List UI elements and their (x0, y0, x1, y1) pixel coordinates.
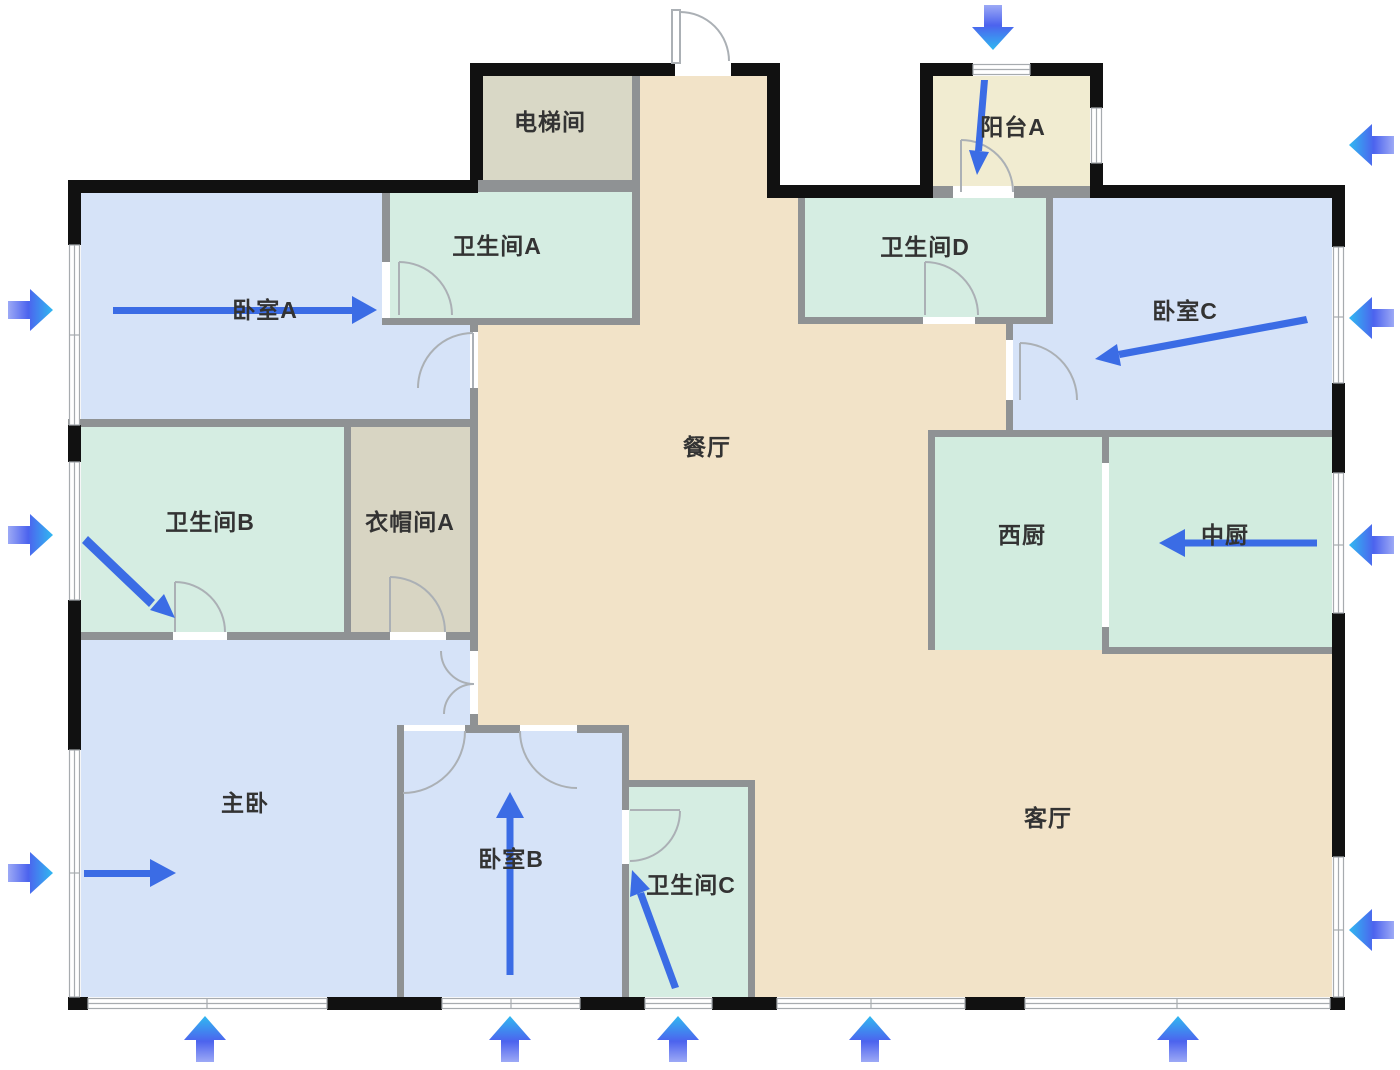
room-label-bath-d: 卫生间D (880, 234, 970, 260)
wall-left-1 (68, 180, 81, 245)
wall-right-1 (1332, 185, 1345, 247)
room-label-elevator: 电梯间 (514, 109, 586, 135)
room-label-bedroom-c: 卧室C (1152, 298, 1218, 324)
wall-elevator-block-left (470, 76, 483, 180)
wall-elevator-bottom (470, 180, 640, 192)
wind-arrow-right-living (1349, 909, 1394, 951)
window-bath-b-left (70, 462, 80, 600)
floor-fills (81, 76, 1332, 997)
window-bedroom-b-bottom (442, 999, 580, 1009)
window-balcony-right (1092, 108, 1102, 163)
window-living-right (1334, 857, 1344, 997)
wall-left-3 (68, 600, 81, 750)
wall-balcony-bottom-1 (933, 186, 953, 198)
wall-balcony-top-1 (920, 63, 973, 76)
wind-arrow-bottom-master (184, 1016, 226, 1062)
room-label-kitchen-west: 西厨 (998, 522, 1046, 548)
wind-arrow-bottom-living-1 (849, 1016, 891, 1062)
wall-dining-west-1 (470, 427, 478, 651)
room-label-bedroom-a: 卧室A (232, 297, 298, 323)
wall-bedroomb-top-1 (465, 725, 520, 733)
wall-bath-a-bottom (382, 318, 640, 325)
room-label-kitchen-chinese: 中厨 (1201, 522, 1249, 548)
wind-arrow-bottom-living-2 (1157, 1016, 1199, 1062)
wind-arrow-left-master (8, 852, 53, 894)
wall-left-2 (68, 425, 81, 462)
wall-bedroomb-top-2 (577, 725, 629, 733)
wall-dining-west-2 (470, 714, 478, 725)
wind-arrow-bottom-bath-c (657, 1016, 699, 1062)
wall-balcony-left (920, 63, 933, 198)
room-label-living: 客厅 (1024, 805, 1072, 831)
wall-right-2 (1332, 383, 1345, 473)
wall-bathc-right (748, 780, 755, 997)
room-label-master: 主卧 (221, 790, 269, 816)
room-label-bath-b: 卫生间B (165, 509, 255, 535)
window-living-bottom-1 (777, 999, 965, 1009)
window-bath-c-bottom (645, 999, 712, 1009)
wall-balcony-right-1 (1090, 63, 1103, 108)
window-bedroom-c-right (1334, 247, 1344, 383)
wind-arrow-left-bath-b (8, 514, 53, 556)
window-balcony-top (973, 65, 1030, 75)
wall-notch-bottom (767, 185, 933, 198)
window-kitchen-right (1334, 473, 1344, 613)
wind-arrow-right-balcony (1349, 124, 1394, 166)
window-master-bottom (88, 999, 327, 1009)
window-living-bottom-2 (1025, 999, 1330, 1009)
door-entry (672, 10, 729, 63)
wall-right-corner (1330, 997, 1345, 1010)
wind-arrow-top-balcony (972, 5, 1014, 50)
wall-bathd-bottom-1 (798, 317, 923, 324)
wall-kitchen-west-left (928, 437, 935, 650)
wind-arrow-right-bedroom-c (1349, 297, 1394, 339)
wall-left-corner (68, 997, 88, 1010)
wall-bathd-left (798, 198, 805, 324)
wall-elevator-right (632, 76, 640, 318)
wall-master-bedroomb-divider (397, 725, 404, 997)
wall-top-right (1090, 185, 1345, 198)
wall-entry-top-left (470, 63, 675, 76)
wall-balcony-bottom-2 (1014, 186, 1090, 198)
room-label-bedroom-b: 卧室B (478, 846, 544, 872)
wall-bottom-2 (580, 997, 645, 1010)
wall-bedroomb-right-1 (622, 725, 629, 810)
wind-arrow-left-bedroom-a (8, 289, 53, 331)
wall-bedroomb-right-2 (622, 864, 629, 997)
wall-bedroomc-left-2 (1006, 400, 1013, 430)
wall-bedroom-a-right-1 (470, 318, 478, 332)
wall-bedroom-a-bottom (68, 419, 478, 427)
room-label-balcony-a: 阳台A (980, 114, 1046, 140)
wall-notch-left (767, 63, 780, 198)
window-master-left (70, 750, 80, 997)
wall-bedroomc-left-1 (1006, 317, 1013, 340)
wall-kitchen-chinese-bottom (1102, 647, 1332, 654)
wall-right-3 (1332, 613, 1345, 857)
window-bedroom-a-left (70, 245, 80, 425)
room-label-cloakroom-a: 衣帽间A (365, 509, 455, 535)
wall-bathd-right (1046, 198, 1053, 317)
floor-plan-svg: 电梯间 阳台A 卫生间A 卫生间D 卧室A 卧室C 餐厅 卫生间B 衣帽间A 西… (0, 0, 1400, 1070)
wall-bathc-top (622, 780, 755, 787)
wall-bottom-1 (327, 997, 442, 1010)
wall-bathb-bottom-2 (227, 632, 390, 640)
floor-plan-page: 电梯间 阳台A 卫生间A 卫生间D 卧室A 卧室C 餐厅 卫生间B 衣帽间A 西… (0, 0, 1400, 1070)
wall-bathb-cloak-divider (344, 427, 351, 633)
room-label-dining: 餐厅 (683, 434, 731, 460)
wall-kitchen-divider-2 (1102, 627, 1109, 650)
wall-bathb-bottom-1 (68, 632, 173, 640)
wall-kitchens-top (928, 430, 1332, 437)
wind-arrow-right-kitchen (1349, 524, 1394, 566)
wall-kitchen-divider-1 (1102, 437, 1109, 463)
wall-bathd-bottom-2 (975, 317, 1053, 324)
wall-top-left (68, 180, 478, 193)
wall-bottom-3 (712, 997, 777, 1010)
room-label-bath-c: 卫生间C (646, 872, 736, 898)
wall-bath-a-left (382, 192, 390, 262)
room-label-bath-a: 卫生间A (452, 233, 542, 259)
wind-arrow-bottom-bedroom-b (489, 1016, 531, 1062)
wall-bottom-4 (965, 997, 1025, 1010)
